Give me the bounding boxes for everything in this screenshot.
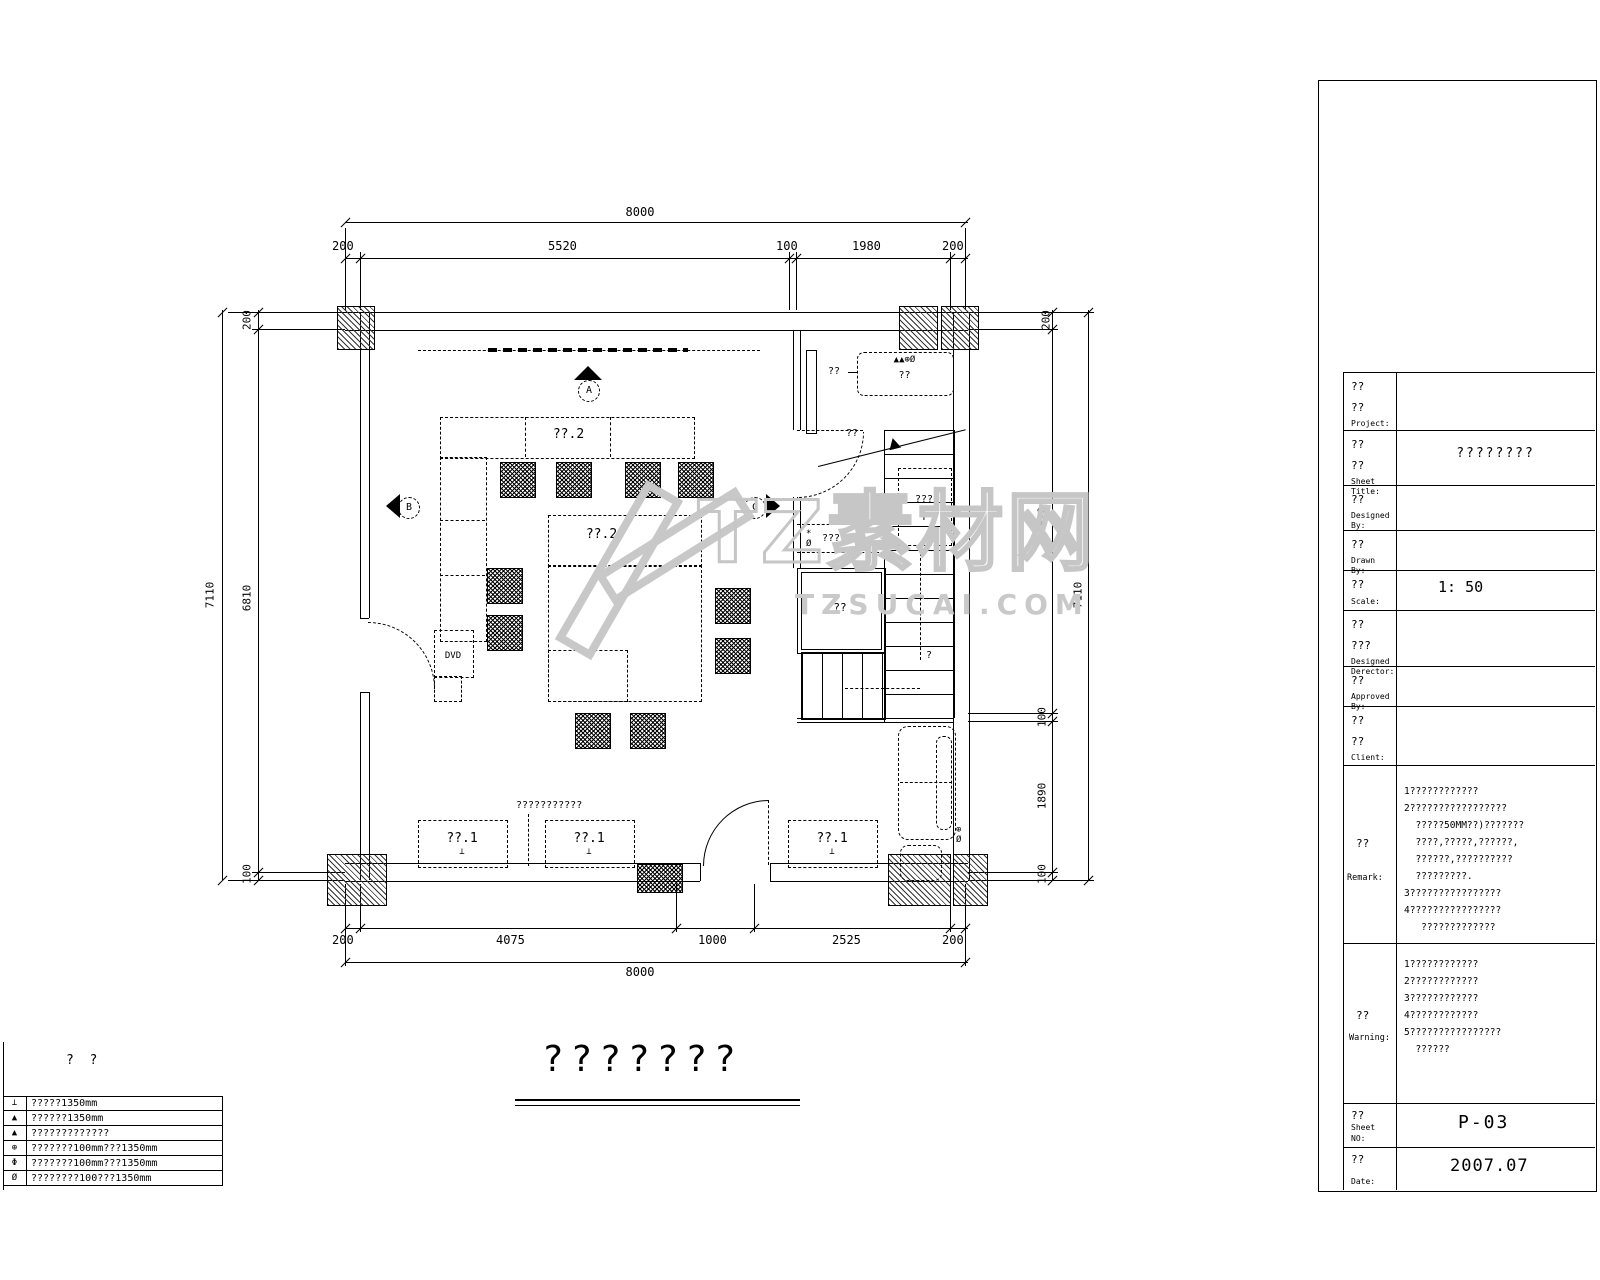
dim-label: 8000 [610,966,670,979]
tb-sheet-no-label: ?? Sheet NO: [1343,1103,1396,1147]
section-marker-a-arrow [574,366,602,380]
tb-remark-cn: ?? [1356,838,1369,850]
cabinet-note: ??????????? [516,800,582,811]
tb-en: Scale: [1351,597,1394,607]
hall-label-dash [848,372,858,373]
tb-en: Project: [1351,419,1394,429]
tb-sheet-no-value: P-03 [1458,1112,1509,1133]
watermark-domain: TZSUCAI.COM [795,588,1090,621]
dvd-label: DVD [434,652,472,662]
tb-approved-by-label: ?? Approved By: [1343,666,1396,706]
sofa-symbols: ⊕Ø [956,826,966,846]
sofa-backrest [936,736,952,830]
legend-row: ▲ ??????1350mm [3,1111,222,1126]
dim-ext [965,228,966,310]
dim-ext [252,329,345,330]
tb-sheet-title-value: ???????? [1400,446,1591,461]
dim-ext [789,252,790,310]
tb-cn: ?? [1351,1153,1394,1167]
dim-ext [228,312,345,313]
legend-text: ?????1350mm [27,1098,97,1109]
legend-symbol: ⊕ [3,1141,27,1155]
cushion [575,713,611,749]
stair-walk-label: ? [926,650,932,661]
remark-line: ??????,?????????? [1404,854,1513,865]
dim-label: 2525 [832,934,861,947]
dim-label: 7110 [204,582,217,609]
dim-ext [950,252,951,310]
sofa-zone-divider [610,417,611,457]
dim-line-left-overall [222,310,223,880]
column [337,306,375,350]
hall-label: ?? [828,366,840,377]
warning-line: 2???????????? [1404,976,1478,987]
title-block-border [1343,765,1595,766]
tb-warning-lines: 1????????????2????????????3????????????4… [1404,956,1501,1058]
tb-en: Client: [1351,753,1394,763]
legend-symbol: Φ [3,1156,27,1170]
dim-line-left-segs [258,310,259,880]
dim-label: 6810 [241,585,254,612]
dim-label: 100 [776,240,798,253]
landing-line [797,718,953,719]
cabinet-label: ??.1 [545,832,633,846]
entry-pier [637,864,683,893]
door-jamb [360,618,369,619]
wall-left [360,312,370,880]
tb-project-label: ???? Project: [1343,372,1396,430]
side-cabinet [440,457,487,642]
dim-label: 4075 [496,934,525,947]
tb-remark-en: Remark: [1347,874,1383,883]
tb-cn: ?? [1351,490,1394,511]
tb-remark-lines: 1????????????2????????????????? ?????50M… [1404,783,1524,936]
tb-cn: ?? [1351,575,1394,596]
tb-date-label: ?? Date: [1343,1147,1396,1190]
legend-text: ??????1350mm [27,1113,103,1124]
warning-line: ?????? [1404,1044,1450,1055]
dim-label: 1000 [698,934,727,947]
tb-scale-label: ?? Scale: [1343,570,1396,610]
door-jamb [700,863,701,881]
dim-ext [968,312,1094,313]
legend-symbol: Ø [3,1171,27,1185]
wall-top [345,312,968,331]
remark-line: 4???????????????? [1404,905,1501,916]
column [327,854,387,906]
stairs-down [801,652,886,720]
cushion [487,568,523,604]
tb-en: Designed By: [1351,511,1394,532]
dvd-shelf [434,676,462,702]
remark-line: ?????????. [1404,871,1473,882]
remark-line: ?????50MM??)??????? [1404,820,1524,831]
remark-line: ????,?????,??????, [1404,837,1518,848]
tb-cn: ?? [1351,535,1394,556]
partition-wall [800,330,801,430]
legend-symbol: ⊥ [3,1096,27,1110]
tb-scale-value: 1: 50 [1438,578,1483,596]
legend-row: Φ ???????100mm???1350mm [3,1156,222,1171]
tb-cn: ?? [1351,438,1364,451]
title-block-border [1396,372,1397,1190]
dim-ext [968,713,1058,714]
title-underline [515,1099,800,1101]
tb-cn: ?? [1351,671,1394,692]
closet-symbols: ▲▲⊕Ø [862,356,947,366]
remark-line: 3???????????????? [1404,888,1501,899]
title-underline [515,1105,800,1106]
floor-symbol: ⊥ [788,848,876,858]
legend-symbol: ▲ [3,1111,27,1125]
drawing-title: ??????? [542,1040,743,1080]
dim-ext [345,228,346,310]
tb-designed-director-label: ????? Designed Derector: [1343,610,1396,666]
side-table [900,845,942,881]
legend-row: Ø ????????100???1350mm [3,1171,222,1186]
warning-line: 1???????????? [1404,959,1478,970]
column [899,306,938,350]
partition-wall [793,330,794,430]
sofa-zone-divider [525,417,526,457]
tb-warning-cn: ?? [1356,1010,1369,1022]
dim-label: 200 [332,240,354,253]
tb-en: Date: [1351,1177,1394,1187]
tb-sheet-title-label: ???? Sheet Title: [1343,430,1396,485]
dim-line-bottom-segs [345,928,968,929]
cabinet-label: ??.1 [418,832,506,846]
door-jamb [360,692,369,693]
zone-label: ??.2 [527,428,610,442]
dim-ext [968,721,1058,722]
cushion [715,638,751,674]
dim-line-top-overall [345,222,968,223]
remark-line: ????????????? [1404,922,1496,933]
legend-row: ⊥ ?????1350mm [3,1096,222,1111]
tb-cn: ??? [1351,639,1371,652]
tb-client-label: ???? Client: [1343,706,1396,765]
tb-warning-en: Warning: [1349,1034,1390,1043]
pilaster [806,350,817,434]
side-cabinet-divider [440,520,485,521]
dim-ext [360,252,361,310]
legend-text: ????????100???1350mm [27,1173,151,1184]
cushion [556,462,592,498]
closet-label: ?? [862,370,947,381]
tb-cn: ?? [1351,714,1364,727]
dim-label: 5520 [548,240,577,253]
dim-line-bottom-overall [345,962,968,963]
legend-symbol: ▲ [3,1126,27,1140]
legend-text: ????????????? [27,1128,109,1139]
floor-symbol: ⊥ [418,848,506,858]
door-arc-balcony [368,622,435,689]
landing-line [797,722,953,723]
dim-ext [968,329,1058,330]
door-arc-entry [703,800,769,866]
dim-label: 200 [332,934,354,947]
title-block-border [1343,943,1595,944]
legend-row: ▲ ????????????? [3,1126,222,1141]
cushion [630,713,666,749]
tb-cn: ?? [1351,401,1364,414]
column [941,306,979,350]
tb-cn: ?? [1351,380,1364,393]
tb-cn: ?? [1351,618,1364,631]
dim-label: 200 [942,240,964,253]
remark-line: 1???????????? [1404,786,1478,797]
dim-label: 1980 [852,240,881,253]
legend-row: ⊕ ???????100mm???1350mm [3,1141,222,1156]
legend-text: ???????100mm???1350mm [27,1158,157,1169]
tb-drawn-by-label: ?? Drawn By: [1343,530,1396,570]
cushion [487,615,523,651]
column [953,854,988,906]
legend-border [222,1096,223,1186]
door-jamb [770,863,771,881]
floor-symbol: ⊥ [545,848,633,858]
warning-line: 5???????????????? [1404,1027,1501,1038]
dim-label: 200 [241,310,254,330]
warning-line: 4???????????? [1404,1010,1478,1021]
stair-walk-line [845,688,920,689]
legend-text: ???????100mm???1350mm [27,1143,157,1154]
note-leader [528,814,529,866]
dim-label: 8000 [610,206,670,219]
dim-ext [754,884,755,932]
watermark-text: TZ素材网 [698,462,1097,587]
tb-en: Sheet NO: [1351,1123,1394,1144]
side-cabinet-divider [440,575,485,576]
tb-cn: ?? [1351,735,1364,748]
warning-line: 3???????????? [1404,993,1478,1004]
cushion [715,588,751,624]
tb-cn: ?? [1351,459,1364,472]
section-marker-b: B [398,497,420,519]
section-marker-a: A [578,380,600,402]
dim-label: 1890 [1036,783,1049,810]
legend-header: ? ? [66,1054,97,1068]
remark-line: 2????????????????? [1404,803,1507,814]
tb-designed-by-label: ?? Designed By: [1343,485,1396,530]
cad-sheet: 8000 200 5520 100 1980 200 200 4075 1000… [0,0,1600,1280]
dim-line-top-segs [345,258,968,259]
tb-cn: ?? [1351,1109,1394,1123]
cushion [500,462,536,498]
tb-date-value: 2007.07 [1450,1156,1529,1176]
dim-label: 200 [942,934,964,947]
curtain-line-bold [488,348,688,352]
dim-ext [796,252,797,310]
hall-door-label: ?? [846,428,858,439]
cabinet-label: ??.1 [788,832,876,846]
